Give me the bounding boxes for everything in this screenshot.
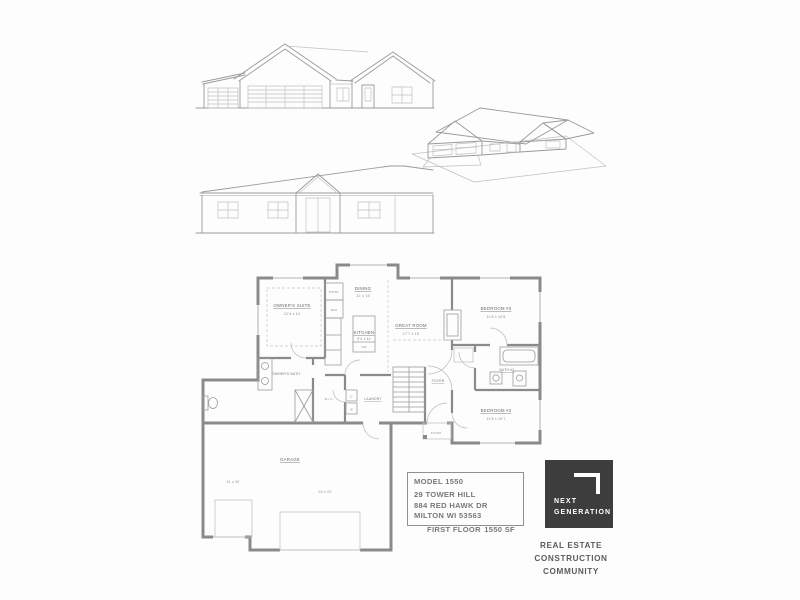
owners-bath-fixtures: [203, 358, 313, 422]
tagline-line-1: REAL ESTATE: [515, 539, 627, 552]
bedroom2-dims: 11'8 x 10'7: [486, 417, 505, 421]
washer-label: W: [350, 408, 353, 412]
fireplace: [444, 310, 461, 340]
pantry-label: PNTRY: [329, 290, 339, 294]
wic-label: W.I.C.: [325, 397, 334, 401]
tagline-line-2: CONSTRUCTION: [515, 552, 627, 565]
front-elevation-drawing: [190, 28, 440, 110]
architectural-plan-sheet: OWNER'S SUITE 12'4 x 14 OWNER'S BATH DIN…: [0, 0, 800, 600]
stoop-label: STOOP: [431, 431, 442, 435]
dining-label: DINING: [355, 286, 372, 291]
garage-bay-dims: 11 x 20: [227, 480, 240, 484]
bedroom3-dims: 11'8 x 10'8: [486, 315, 505, 319]
kitchen-label: KITCHEN: [354, 330, 375, 335]
logo-line-2: GENERATION: [554, 508, 611, 519]
bedroom2-label: BEDROOM #2: [481, 408, 512, 413]
owners-suite-dims: 12'4 x 14: [284, 312, 300, 316]
foyer-label: FOYER: [432, 379, 445, 383]
owners-bath-label: OWNER'S BATH: [272, 372, 300, 376]
dryer-label: D: [350, 395, 352, 399]
tagline-line-3: COMMUNITY: [515, 565, 627, 578]
garage-door-tracks: [215, 500, 360, 550]
kitchen-dims: 9'4 x 11: [357, 337, 371, 341]
dining-dims: 11' x 10: [356, 294, 370, 298]
bath2-label: BATH #2: [500, 368, 515, 372]
address-line-3: MILTON WI 53563: [414, 511, 518, 521]
title-block: MODEL 1550 29 TOWER HILL 884 RED HAWK DR…: [407, 472, 524, 526]
bedroom3-label: BEDROOM #3: [481, 306, 512, 311]
rear-elevation-drawing: [190, 156, 440, 241]
garage-label: GARAGE: [280, 457, 300, 462]
next-generation-logo: NEXT GENERATION: [545, 460, 613, 528]
floor-label: FIRST FLOOR: [427, 525, 481, 535]
model-number: MODEL 1550: [414, 477, 518, 487]
owners-suite-label: OWNER'S SUITE: [273, 303, 310, 308]
company-tagline: REAL ESTATE CONSTRUCTION COMMUNITY: [515, 539, 627, 578]
dishwasher-label: DW: [361, 345, 366, 349]
stairs: [393, 367, 425, 412]
logo-line-1: NEXT: [554, 497, 611, 508]
address-line-2: 884 RED HAWK DR: [414, 501, 518, 511]
great-room-label: GREAT ROOM: [395, 323, 427, 328]
floor-area: 1550 SF: [484, 525, 515, 535]
address-line-1: 29 TOWER HILL: [414, 490, 518, 500]
laundry-label: LAUNDRY: [364, 397, 382, 401]
garage-main-dims: 24 x 22: [318, 490, 331, 494]
great-room-dims: 17'7 x 15: [403, 332, 419, 336]
bath2-fixtures: [454, 347, 538, 386]
refrigerator-label: RFG: [331, 308, 338, 312]
